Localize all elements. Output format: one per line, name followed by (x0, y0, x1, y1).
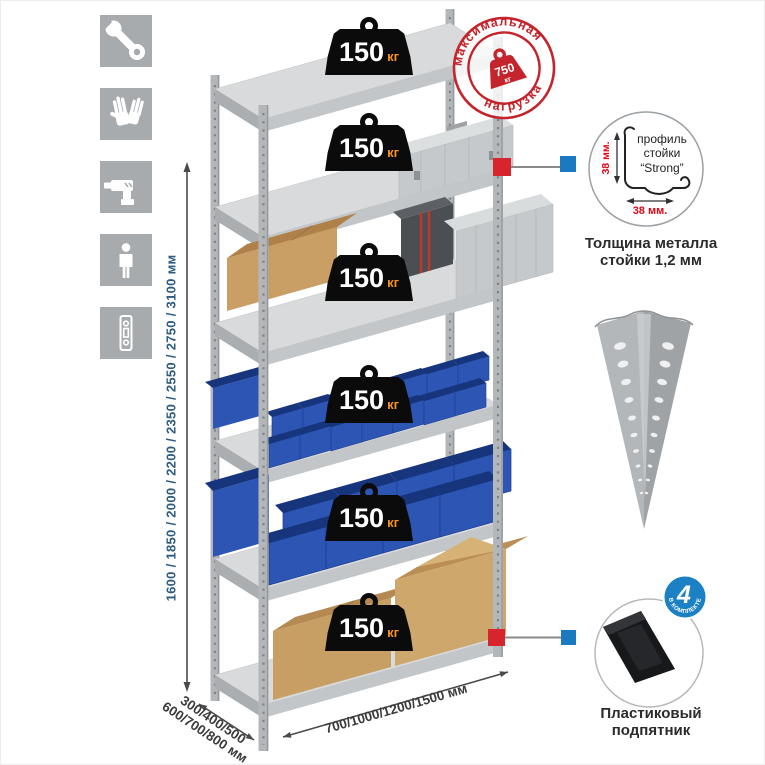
weight-value: 150 (339, 37, 384, 67)
profile-dim-horizontal: 38 мм. (633, 205, 668, 217)
product-infographic: 1600 / 1850 / 2000 / 2200 / 2350 / 2550 … (0, 0, 765, 765)
weight-value: 150 (339, 133, 384, 163)
weight-value: 150 (339, 613, 384, 643)
profile-label-line3: “Strong” (640, 161, 683, 175)
profile-caption-line1: Толщина металла (573, 235, 729, 252)
drill-icon (100, 161, 152, 213)
red-marker-square (493, 158, 511, 176)
height-dimension-label: 1600 / 1850 / 2000 / 2200 / 2350 / 2550 … (164, 255, 179, 602)
height-dimension-line (184, 162, 191, 692)
max-load-stamp: максимальная нагрузка 750 кг (442, 6, 566, 130)
weight-unit: кг (387, 625, 399, 640)
feature-icons (100, 15, 152, 380)
profile-callout-connector (493, 156, 576, 176)
profile-caption-line2: стойки 1,2 мм (573, 252, 729, 269)
shelf-load-badge: 150кг (325, 255, 413, 301)
blue-marker-square (560, 156, 576, 172)
rack-post-icon (100, 307, 152, 359)
weight-unit: кг (387, 397, 399, 412)
shelf-load-badge: 150кг (325, 125, 413, 171)
weight-value: 150 (339, 263, 384, 293)
shelf-load-badge: 150кг (325, 605, 413, 651)
blue-marker-square (561, 630, 576, 645)
weight-unit: кг (387, 515, 399, 530)
shelf-load-badge: 150кг (325, 29, 413, 75)
shelf-load-badge: 150кг (325, 495, 413, 541)
weight-value: 150 (339, 503, 384, 533)
gloves-icon (100, 88, 152, 140)
shelf-load-badge: 150кг (325, 377, 413, 423)
profile-label-line1: профиль (637, 132, 687, 146)
foot-caption-line2: подпятник (573, 722, 729, 739)
profile-caption: Толщина металла стойки 1,2 мм (573, 235, 729, 269)
profile-callout: 38 мм. 38 мм. профиль стойки “Strong” (584, 105, 714, 235)
steel-angle-post (587, 301, 712, 541)
profile-label-line2: стойки (644, 146, 681, 160)
weight-unit: кг (387, 49, 399, 64)
red-marker-square (488, 629, 505, 646)
included-count-badge: 4 В КОМПЛЕКТЕ (662, 574, 708, 620)
foot-callout-connector (488, 629, 576, 646)
weight-unit: кг (387, 145, 399, 160)
person-icon (100, 234, 152, 286)
profile-dim-vertical: 38 мм. (600, 141, 612, 174)
foot-caption-line1: Пластиковый (573, 705, 729, 722)
badge-value: 4 (676, 581, 691, 609)
foot-caption: Пластиковый подпятник (573, 705, 729, 739)
weight-value: 150 (339, 385, 384, 415)
wrench-icon (100, 15, 152, 67)
weight-unit: кг (387, 275, 399, 290)
